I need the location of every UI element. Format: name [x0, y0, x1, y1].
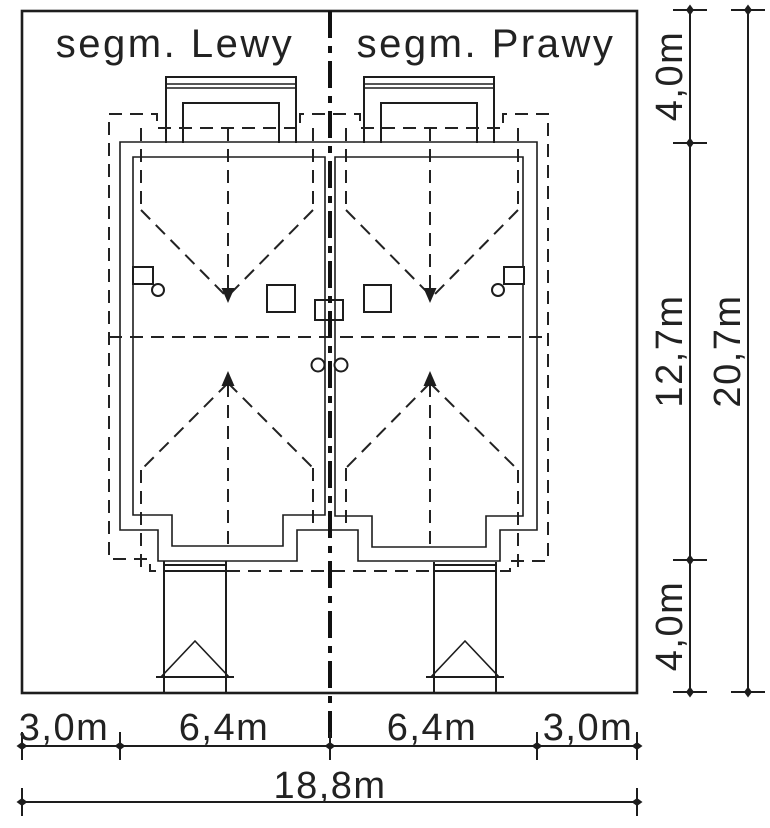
- site-plan-drawing: segm. Lewy segm. Prawy: [0, 0, 770, 828]
- dim-left-segment-width: 6,4m: [179, 707, 269, 749]
- up-arrow-icon: [222, 371, 235, 386]
- dim-total-width: 18,8m: [273, 765, 386, 807]
- down-arrow-icon: [222, 288, 235, 303]
- wall-stub: [504, 267, 524, 284]
- up-arrow-icon: [424, 371, 437, 386]
- dim-building-depth: 12,7m: [649, 294, 691, 407]
- wall-stub: [133, 267, 153, 284]
- dim-total-depth: 20,7m: [707, 294, 749, 407]
- dim-bottom-margin: 4,0m: [649, 581, 691, 671]
- down-arrow-icon: [424, 288, 437, 303]
- entrance-marker-triangle: [431, 641, 499, 677]
- left-entrance-walkway: [156, 561, 234, 693]
- entrance-marker-triangle: [161, 641, 229, 677]
- left-dormer-outline: [166, 77, 296, 143]
- vent-pipe-circle: [152, 284, 164, 296]
- chimney-square: [364, 285, 391, 312]
- dim-top-margin: 4,0m: [649, 31, 691, 121]
- left-segment-label: segm. Lewy: [56, 22, 294, 66]
- right-dimension-lines: 4,0m 12,7m 4,0m 20,7m: [649, 5, 765, 698]
- right-entrance-walkway: [426, 562, 504, 693]
- vent-pipe-circle: [335, 359, 348, 372]
- chimney-square: [267, 285, 295, 312]
- dim-right-margin: 3,0m: [543, 707, 633, 749]
- vent-pipe-circle: [492, 284, 504, 296]
- dim-left-margin: 3,0m: [19, 707, 109, 749]
- vent-pipe-circle: [312, 359, 325, 372]
- right-segment-label: segm. Prawy: [357, 22, 616, 66]
- dim-right-segment-width: 6,4m: [387, 707, 477, 749]
